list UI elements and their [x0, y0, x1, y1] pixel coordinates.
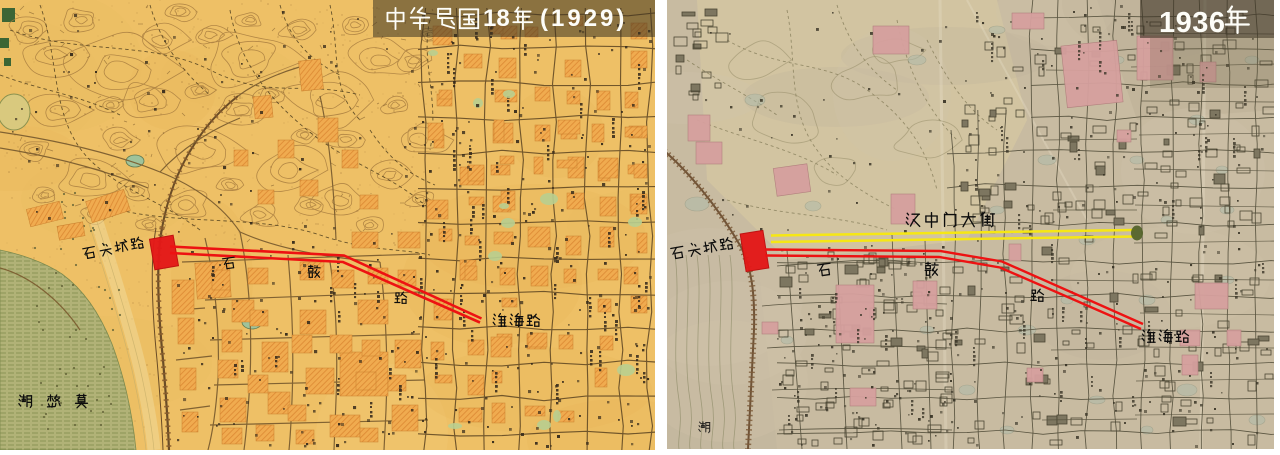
svg-text:1936: 1936 — [1159, 7, 1226, 39]
svg-text:18: 18 — [483, 5, 510, 32]
svg-text:(1929): (1929) — [540, 5, 627, 32]
